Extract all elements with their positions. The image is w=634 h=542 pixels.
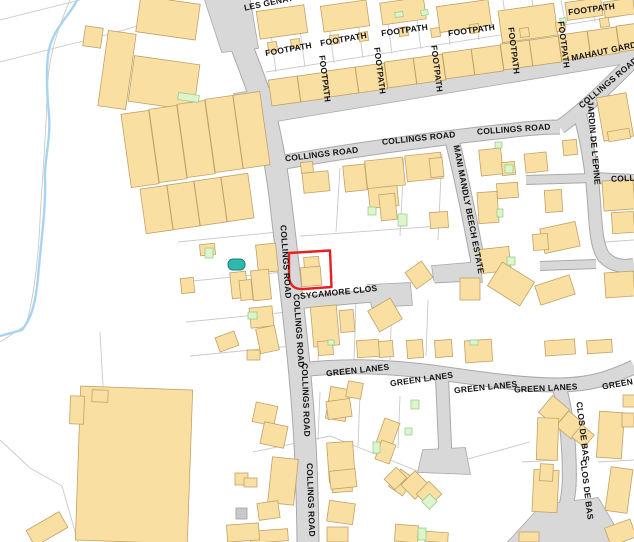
building [532, 233, 548, 250]
building [379, 193, 398, 221]
green-patch [495, 142, 502, 148]
building [326, 398, 352, 419]
building [406, 339, 423, 358]
building [519, 27, 529, 37]
building [83, 26, 104, 48]
parcel-boundary [604, 240, 634, 242]
building [327, 527, 348, 542]
building [425, 531, 449, 542]
road-label: COLLINGS ROAD [611, 170, 634, 184]
building [460, 278, 480, 300]
building [329, 469, 357, 490]
stub-west[interactable] [526, 178, 594, 180]
building [327, 500, 356, 524]
green-patch [421, 10, 429, 16]
stub-265[interactable] [540, 264, 596, 266]
road-label: FOOTPATH [319, 30, 367, 48]
building [221, 173, 254, 221]
building [320, 0, 369, 32]
parcel-boundary [398, 396, 400, 448]
building [477, 191, 499, 223]
green-patch [328, 340, 334, 345]
gray-building [236, 508, 247, 519]
building [605, 467, 633, 514]
building [536, 418, 558, 461]
building [136, 0, 200, 40]
building [244, 478, 257, 487]
stream [0, 0, 77, 336]
building [339, 309, 355, 332]
green-patch [470, 340, 478, 345]
building [434, 339, 452, 357]
green-patch [373, 442, 380, 453]
building [471, 45, 503, 75]
building [545, 339, 576, 356]
building [604, 271, 634, 298]
building [256, 5, 307, 39]
stream-layer [0, 0, 77, 336]
building [250, 269, 271, 301]
building [247, 350, 260, 360]
building [623, 395, 634, 407]
parcel-boundary [0, 0, 80, 20]
building [519, 532, 539, 542]
green-patch [248, 312, 257, 319]
building [26, 512, 68, 542]
building [562, 139, 577, 155]
building [524, 152, 548, 173]
building [529, 36, 561, 66]
parcel-boundary [178, 232, 278, 242]
building [180, 277, 194, 293]
building [535, 275, 575, 305]
building [599, 17, 609, 27]
parcel-boundary [336, 168, 340, 232]
building [430, 27, 440, 37]
building [302, 171, 330, 194]
parcel-boundary [318, 392, 320, 440]
building [356, 339, 379, 357]
building [602, 179, 634, 211]
parcel-boundary [300, 226, 440, 236]
building [346, 381, 364, 399]
building [343, 164, 368, 192]
building [611, 211, 634, 233]
green-patch [505, 165, 513, 173]
building [384, 58, 416, 88]
building [300, 161, 313, 173]
green-patch [411, 400, 419, 409]
green-patch [398, 214, 407, 226]
building [239, 279, 253, 300]
building [92, 390, 108, 403]
green-patch [205, 248, 213, 258]
green-patch [395, 11, 404, 17]
building [622, 413, 634, 427]
building [260, 422, 288, 449]
building [70, 396, 85, 424]
building [540, 464, 554, 482]
building [378, 341, 393, 358]
building [268, 76, 300, 106]
building [256, 243, 279, 273]
building [544, 189, 562, 212]
building [268, 457, 299, 505]
building [442, 49, 474, 79]
building [215, 331, 239, 352]
building [464, 339, 492, 363]
parcel-boundary [358, 394, 360, 446]
building [596, 411, 624, 459]
map-canvas[interactable]: FOOTPATHFOOTPATHFOOTPATHFOOTPATHFOOTPATH… [0, 0, 634, 542]
building [226, 523, 259, 542]
building [429, 211, 448, 228]
building [394, 524, 418, 542]
green-patch [507, 257, 515, 265]
building [365, 157, 406, 189]
parcel-boundary [0, 0, 70, 342]
swimming-pool [228, 259, 245, 270]
building [128, 56, 200, 111]
building [497, 182, 519, 198]
building [257, 501, 280, 521]
green-lanes-branch[interactable] [442, 378, 445, 460]
green-patch [497, 209, 503, 217]
green-patch [405, 428, 412, 435]
green-patch [418, 528, 426, 540]
building [479, 148, 504, 176]
building [429, 157, 444, 177]
building [300, 266, 322, 287]
parcel-boundary [598, 460, 634, 462]
building [587, 339, 613, 354]
building [75, 386, 192, 542]
green-patch [368, 207, 376, 215]
parcel-boundary [426, 300, 428, 356]
map-svg: FOOTPATHFOOTPATHFOOTPATHFOOTPATHFOOTPATH… [0, 0, 634, 542]
